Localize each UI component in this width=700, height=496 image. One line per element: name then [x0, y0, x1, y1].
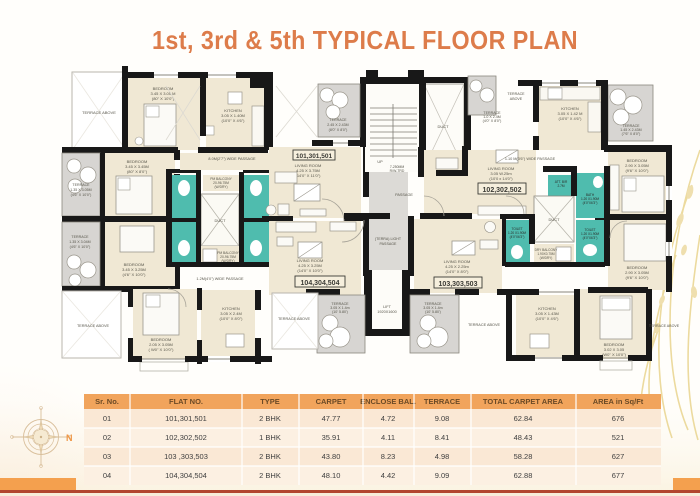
- svg-text:03: 03: [103, 452, 111, 461]
- svg-text:521: 521: [612, 433, 625, 442]
- svg-text:(W/DRY): (W/DRY): [540, 256, 553, 260]
- svg-text:676: 676: [612, 414, 625, 423]
- svg-text:1.2M(4'0") WIDE PASSAGE: 1.2M(4'0") WIDE PASSAGE: [196, 277, 244, 281]
- svg-text:9.08: 9.08: [435, 414, 450, 423]
- svg-text:TERRACE ABOVE: TERRACE ABOVE: [649, 324, 680, 328]
- svg-text:627: 627: [612, 452, 625, 461]
- svg-text:TERRACE: TERRACE: [72, 183, 90, 187]
- svg-text:01: 01: [103, 414, 111, 423]
- svg-text:(14'0" X 8'0"): (14'0" X 8'0"): [445, 269, 469, 274]
- svg-text:(4'6" X 10'0"): (4'6" X 10'0"): [122, 272, 146, 277]
- svg-text:( W0" X 10'0"): ( W0" X 10'0"): [149, 347, 175, 352]
- svg-text:62.88: 62.88: [514, 471, 533, 480]
- svg-text:(14'0" X 10'0"): (14'0" X 10'0"): [297, 268, 323, 273]
- svg-text:4.72: 4.72: [381, 414, 396, 423]
- svg-text:101,301,501: 101,301,501: [165, 414, 207, 423]
- svg-text:TERRACE ABOVE: TERRACE ABOVE: [82, 110, 116, 115]
- svg-text:1920X1600: 1920X1600: [377, 310, 396, 314]
- svg-text:(9'6" X 10'0"): (9'6" X 10'0"): [625, 168, 649, 173]
- svg-text:(4'6" X 10'0"): (4'6" X 10'0"): [70, 245, 91, 249]
- svg-text:2 BHK: 2 BHK: [259, 452, 281, 461]
- svg-text:(14'0" X 11'0"): (14'0" X 11'0"): [296, 173, 322, 178]
- svg-text:(10'0" X 8'0"): (10'0" X 8'0"): [219, 316, 243, 321]
- svg-text:CARPET: CARPET: [316, 397, 347, 406]
- svg-text:PASSAGE: PASSAGE: [395, 193, 413, 197]
- svg-text:UP: UP: [377, 160, 383, 164]
- svg-text:(4'0" X 8'0"): (4'0" X 8'0"): [483, 119, 502, 123]
- svg-text:43.80: 43.80: [322, 452, 341, 461]
- svg-text:ABOVE: ABOVE: [510, 97, 523, 101]
- svg-text:35.91: 35.91: [322, 433, 341, 442]
- svg-text:4.42: 4.42: [381, 471, 396, 480]
- svg-text:102,302,502: 102,302,502: [165, 433, 207, 442]
- svg-text:47.77: 47.77: [322, 414, 341, 423]
- svg-text:(10'0" X 4'6"): (10'0" X 4'6"): [558, 116, 582, 121]
- svg-text:101,301,501: 101,301,501: [296, 153, 333, 160]
- svg-text:(80" X 8'0"): (80" X 8'0"): [127, 169, 148, 174]
- svg-text:TERRACE ABOVE: TERRACE ABOVE: [77, 324, 110, 328]
- svg-text:TERRACE ABOVE: TERRACE ABOVE: [278, 317, 311, 321]
- svg-text:(W0" X 10'0"): (W0" X 10'0"): [602, 352, 627, 357]
- svg-text:1 BHK: 1 BHK: [259, 433, 281, 442]
- svg-text:8.0M(2'7") WIDE PASSAGE: 8.0M(2'7") WIDE PASSAGE: [208, 157, 256, 161]
- svg-text:TERRACE: TERRACE: [71, 235, 89, 239]
- svg-text:(4'0"X6'3"): (4'0"X6'3"): [583, 236, 598, 240]
- svg-text:(4'6" X 10'0"): (4'6" X 10'0"): [71, 193, 92, 197]
- svg-text:(10'0" X 4'6"): (10'0" X 4'6"): [221, 118, 245, 123]
- svg-text:1.35 X 3.05M: 1.35 X 3.05M: [70, 188, 91, 192]
- svg-text:(7'6" X 8'0"): (7'6" X 8'0"): [622, 132, 641, 136]
- svg-text:04: 04: [103, 471, 111, 480]
- svg-text:4.98: 4.98: [435, 452, 450, 461]
- svg-text:FLAT NO.: FLAT NO.: [169, 397, 203, 406]
- svg-text:Sr. No.: Sr. No.: [95, 397, 119, 406]
- svg-text:(4'0"X6'3"): (4'0"X6'3"): [510, 235, 525, 239]
- svg-text:677: 677: [612, 471, 625, 480]
- svg-text:ENCLOSE BAL.: ENCLOSE BAL.: [360, 397, 416, 406]
- svg-text:TERRACE ABOVE: TERRACE ABOVE: [468, 323, 501, 327]
- svg-text:(8'0" X 8'0"): (8'0" X 8'0"): [329, 128, 348, 132]
- svg-text:2.45 X 2.43M: 2.45 X 2.43M: [327, 123, 348, 127]
- svg-text:48.43: 48.43: [514, 433, 533, 442]
- svg-text:DUCT: DUCT: [548, 217, 560, 222]
- svg-text:1.35 X 3.04M: 1.35 X 3.04M: [69, 240, 90, 244]
- svg-text:4.11: 4.11: [381, 433, 395, 442]
- svg-text:AREA in Sq/Ft: AREA in Sq/Ft: [593, 397, 644, 406]
- svg-text:103,303,503: 103,303,503: [439, 281, 478, 288]
- svg-text:9.09: 9.09: [435, 471, 450, 480]
- svg-text:TERRACE: TERRACE: [507, 92, 525, 96]
- svg-text:1st, 3rd & 5th TYPICAL FLOOR P: 1st, 3rd & 5th TYPICAL FLOOR PLAN: [152, 25, 578, 55]
- svg-text:2.7M: 2.7M: [557, 184, 564, 188]
- svg-text:LIFT: LIFT: [383, 305, 391, 309]
- svg-text:8.23: 8.23: [381, 452, 396, 461]
- svg-text:(9'6" X 10'0"): (9'6" X 10'0"): [625, 275, 649, 280]
- svg-text:(4'0"X6'3"): (4'0"X6'3"): [583, 201, 598, 205]
- svg-text:DUCT: DUCT: [437, 124, 449, 129]
- svg-text:58.28: 58.28: [514, 452, 533, 461]
- svg-text:(W/DRY): (W/DRY): [214, 185, 227, 189]
- svg-text:(TERRA) LIGHT: (TERRA) LIGHT: [375, 237, 402, 241]
- svg-text:(80" X 10'0"): (80" X 10'0"): [152, 96, 175, 101]
- svg-text:TERRACE: TERRACE: [424, 397, 460, 406]
- svg-text:62.84: 62.84: [514, 414, 533, 423]
- svg-text:N: N: [66, 433, 73, 443]
- svg-text:102,302,502: 102,302,502: [483, 187, 522, 194]
- svg-text:(10' 5.80'): (10' 5.80'): [332, 310, 348, 314]
- svg-text:02: 02: [103, 433, 111, 442]
- svg-text:(10'0" X 4'6"): (10'0" X 4'6"): [535, 316, 559, 321]
- svg-text:48.10: 48.10: [322, 471, 341, 480]
- svg-text:8.41: 8.41: [435, 433, 450, 442]
- svg-text:DUCT: DUCT: [214, 218, 226, 223]
- svg-text:104,304,504: 104,304,504: [165, 471, 207, 480]
- svg-text:2 BHK: 2 BHK: [259, 414, 281, 423]
- svg-text:104,304,504: 104,304,504: [301, 280, 340, 287]
- svg-text:103 ,303,503: 103 ,303,503: [164, 452, 208, 461]
- svg-text:(10'0 x 14'0"): (10'0 x 14'0"): [489, 176, 513, 181]
- svg-text:TERRACE: TERRACE: [329, 118, 347, 122]
- svg-text:TOTAL CARPET AREA: TOTAL CARPET AREA: [483, 397, 564, 406]
- svg-text:2 BHK: 2 BHK: [259, 471, 281, 480]
- svg-text:TYPE: TYPE: [260, 397, 280, 406]
- svg-text:1.10 M(3'6") WIDE PASSAGE: 1.10 M(3'6") WIDE PASSAGE: [505, 157, 556, 161]
- svg-text:(10' 5.80'): (10' 5.80'): [425, 310, 441, 314]
- svg-text:PASSAGE: PASSAGE: [380, 242, 398, 246]
